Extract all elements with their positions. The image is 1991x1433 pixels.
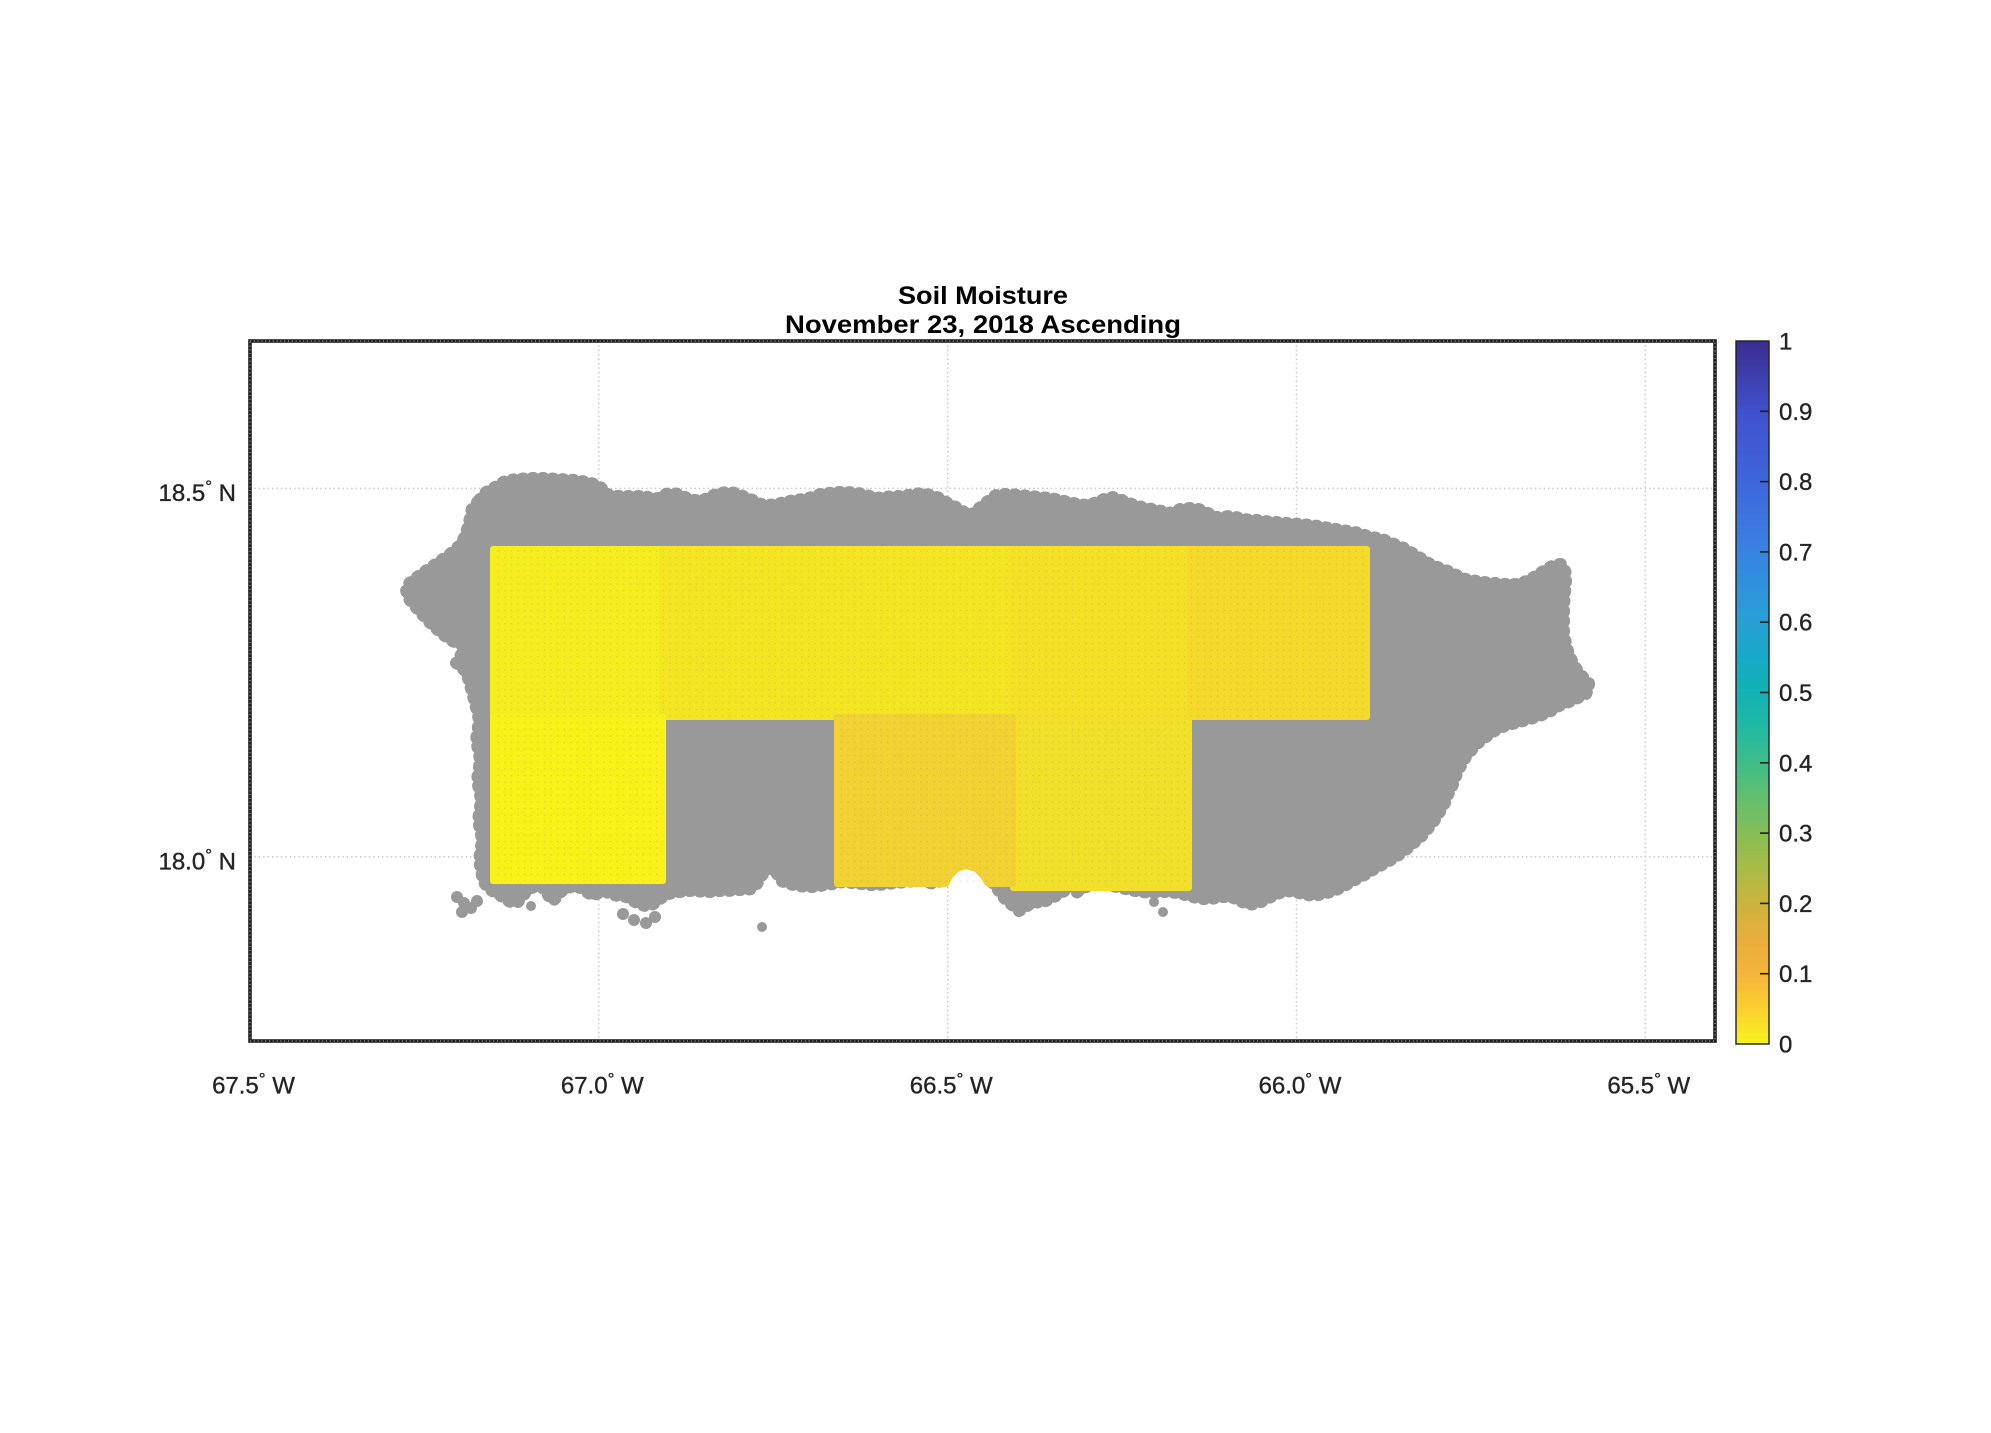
svg-text:1: 1 xyxy=(1779,329,1792,356)
svg-text:18.0° N: 18.0° N xyxy=(158,845,236,875)
svg-text:0.4: 0.4 xyxy=(1779,750,1812,777)
svg-text:66.5° W: 66.5° W xyxy=(910,1070,993,1100)
svg-text:Soil Moisture: Soil Moisture xyxy=(898,282,1068,310)
svg-text:18.5° N: 18.5° N xyxy=(158,477,236,507)
svg-text:0.9: 0.9 xyxy=(1779,399,1812,426)
svg-text:0.2: 0.2 xyxy=(1779,891,1812,918)
svg-text:0.1: 0.1 xyxy=(1779,961,1812,988)
svg-text:0.7: 0.7 xyxy=(1779,539,1812,566)
svg-text:65.5° W: 65.5° W xyxy=(1607,1070,1690,1100)
svg-text:66.0° W: 66.0° W xyxy=(1259,1070,1342,1100)
svg-text:0.6: 0.6 xyxy=(1779,610,1812,637)
svg-text:0.3: 0.3 xyxy=(1779,821,1812,848)
svg-text:0.5: 0.5 xyxy=(1779,680,1812,707)
svg-text:November 23, 2018 Ascending: November 23, 2018 Ascending xyxy=(785,311,1181,339)
svg-text:0.8: 0.8 xyxy=(1779,469,1812,496)
svg-text:67.0° W: 67.0° W xyxy=(561,1070,644,1100)
svg-text:0: 0 xyxy=(1779,1032,1792,1059)
svg-text:67.5° W: 67.5° W xyxy=(212,1070,295,1100)
